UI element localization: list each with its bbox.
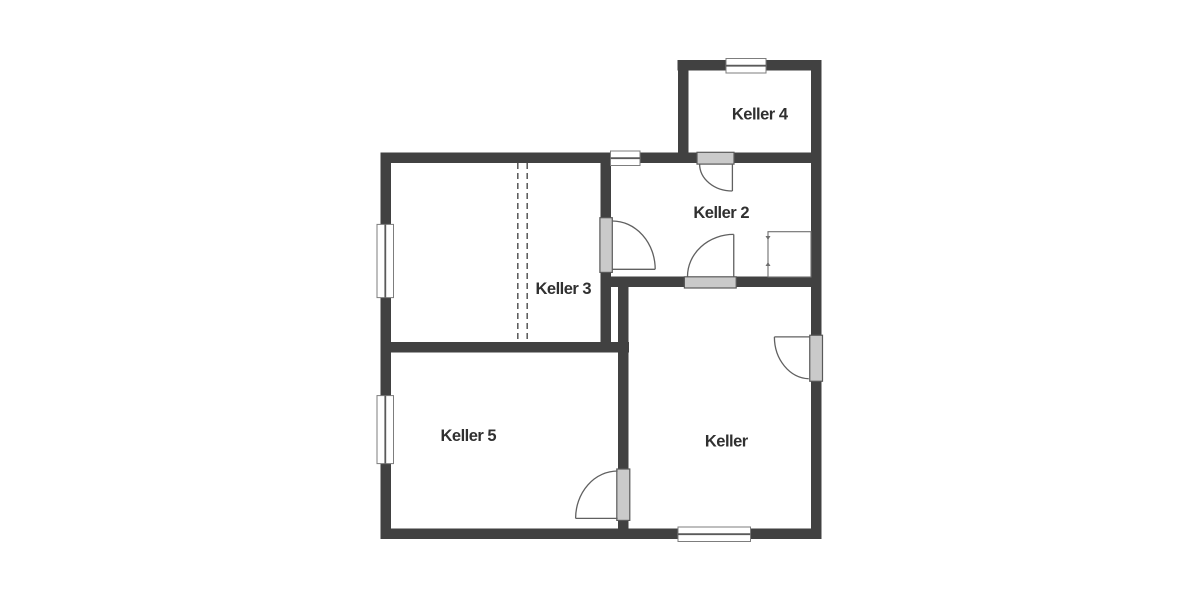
svg-text:Keller 2: Keller 2: [693, 204, 749, 222]
svg-text:Keller 3: Keller 3: [535, 280, 591, 298]
svg-text:Keller: Keller: [705, 432, 749, 450]
svg-text:Keller 4: Keller 4: [732, 105, 789, 123]
svg-text:Keller 5: Keller 5: [440, 427, 496, 445]
